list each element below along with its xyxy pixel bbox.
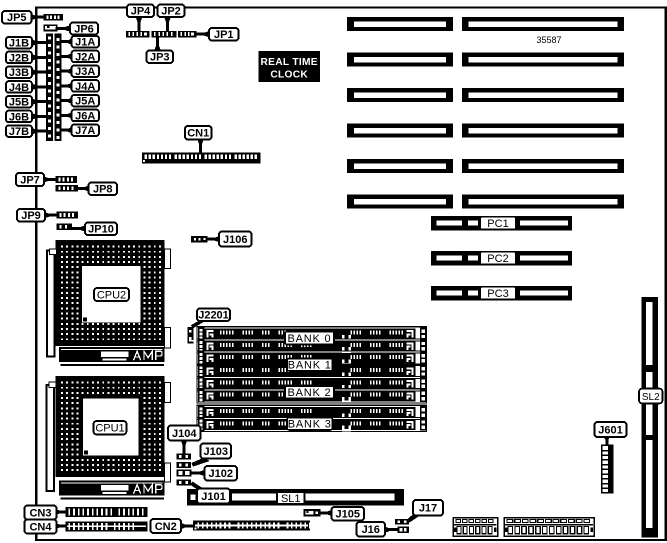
svg-text:J104: J104: [172, 428, 197, 440]
svg-text:J6B: J6B: [9, 111, 29, 123]
svg-text:JP2: JP2: [161, 6, 181, 18]
svg-text:SL2: SL2: [642, 392, 660, 403]
svg-text:CN4: CN4: [29, 521, 52, 533]
svg-text:J601: J601: [598, 424, 622, 436]
svg-text:J2201: J2201: [198, 310, 229, 322]
svg-text:J6A: J6A: [75, 110, 95, 122]
svg-text:JP6: JP6: [74, 23, 94, 35]
svg-text:JP3: JP3: [150, 52, 170, 64]
svg-text:CPU2: CPU2: [97, 289, 126, 301]
svg-text:BANK 3: BANK 3: [288, 419, 332, 431]
svg-text:BANK 1: BANK 1: [288, 360, 332, 372]
svg-text:J3B: J3B: [9, 67, 29, 79]
svg-text:J17: J17: [419, 503, 437, 515]
svg-text:BANK 2: BANK 2: [288, 387, 332, 399]
svg-text:BANK 0: BANK 0: [288, 333, 332, 345]
svg-text:J16: J16: [362, 524, 380, 536]
svg-text:SL1: SL1: [281, 493, 301, 505]
svg-text:CN3: CN3: [29, 507, 51, 519]
svg-text:PC1: PC1: [487, 218, 508, 230]
svg-text:JP7: JP7: [20, 174, 40, 186]
svg-text:PC3: PC3: [487, 288, 508, 300]
svg-text:J1B: J1B: [9, 38, 29, 50]
svg-text:J4B: J4B: [9, 82, 29, 94]
svg-text:J105: J105: [336, 509, 360, 521]
svg-text:JP1: JP1: [214, 29, 234, 41]
svg-text:CLOCK: CLOCK: [270, 70, 308, 81]
svg-text:J2B: J2B: [9, 52, 29, 64]
svg-text:CN1: CN1: [187, 128, 209, 140]
svg-text:JP10: JP10: [88, 224, 114, 236]
svg-text:J1A: J1A: [75, 37, 95, 49]
svg-text:J101: J101: [201, 491, 225, 503]
svg-text:J3A: J3A: [75, 66, 95, 78]
svg-text:JP4: JP4: [131, 6, 151, 18]
svg-text:35587: 35587: [536, 35, 561, 45]
svg-text:J2A: J2A: [75, 51, 95, 63]
svg-text:J106: J106: [223, 234, 247, 246]
svg-text:J7B: J7B: [9, 126, 29, 138]
svg-text:PC2: PC2: [487, 253, 508, 265]
svg-text:J102: J102: [209, 468, 233, 480]
svg-text:CN2: CN2: [155, 521, 177, 533]
svg-text:J4A: J4A: [75, 81, 95, 93]
svg-text:J5B: J5B: [9, 97, 29, 109]
svg-text:J7A: J7A: [75, 125, 95, 137]
svg-text:JP9: JP9: [21, 210, 41, 222]
svg-text:JP8: JP8: [93, 184, 113, 196]
svg-text:J103: J103: [204, 446, 228, 458]
svg-text:J5A: J5A: [75, 96, 95, 108]
svg-text:CPU1: CPU1: [95, 423, 124, 435]
svg-text:JP5: JP5: [7, 12, 27, 24]
svg-text:REAL TIME: REAL TIME: [260, 57, 317, 68]
